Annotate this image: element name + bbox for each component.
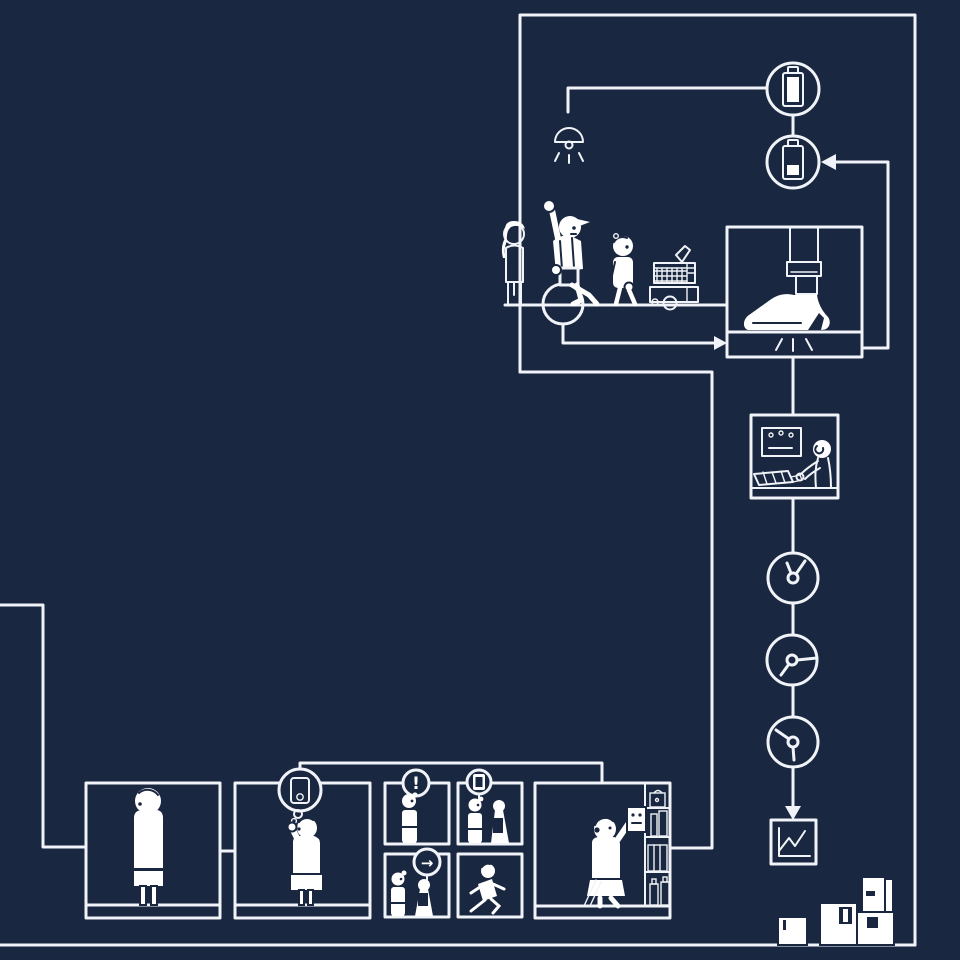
- illustration-stage: ! →: [0, 0, 960, 960]
- thought-bubble: [279, 769, 321, 811]
- exclamation-badge: !: [412, 774, 420, 794]
- battery-full-icon: [767, 63, 819, 115]
- arrow-badge: →: [421, 854, 434, 872]
- clock-icon-3: [768, 717, 818, 767]
- operator-workstation-icon: [751, 415, 838, 498]
- illustration-canvas: ! →: [0, 0, 960, 960]
- running-person-scene: [458, 854, 522, 917]
- clock-icon-1: [768, 553, 818, 603]
- directions-kiosk-scene: →: [385, 849, 449, 917]
- waiting-person-scene: [86, 783, 220, 918]
- clock-icon-2: [767, 635, 817, 685]
- conveyor-scanner-icon: [727, 332, 862, 357]
- shelf-shopper-scene: [535, 783, 670, 918]
- phone-support-scene: [235, 769, 370, 918]
- picked-box: [627, 807, 646, 832]
- shoe-press-scene: [714, 227, 862, 357]
